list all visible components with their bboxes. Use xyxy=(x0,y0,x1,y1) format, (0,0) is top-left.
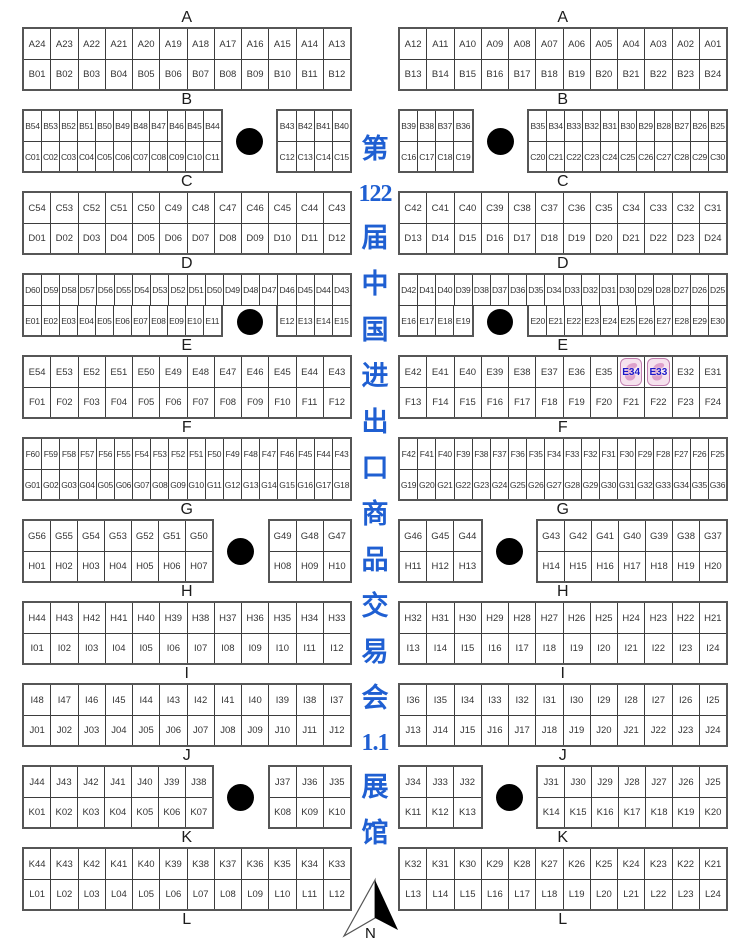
booth-cell[interactable]: G11 xyxy=(205,469,223,499)
booth-cell[interactable]: C25 xyxy=(618,141,636,171)
booth-cell[interactable]: B25 xyxy=(708,111,726,141)
booth-cell[interactable]: D34 xyxy=(544,275,562,305)
booth-cell[interactable]: F05 xyxy=(132,387,159,417)
booth-cell[interactable]: C32 xyxy=(672,193,699,223)
booth-cell[interactable]: G52 xyxy=(131,521,158,551)
booth-cell[interactable]: K41 xyxy=(105,849,132,879)
booth-cell[interactable]: L19 xyxy=(563,879,590,909)
booth-cell[interactable]: I48 xyxy=(24,685,50,715)
booth-cell[interactable]: I18 xyxy=(535,633,562,663)
booth-cell[interactable]: A13 xyxy=(323,29,350,59)
booth-cell[interactable]: C03 xyxy=(59,141,77,171)
booth-cell[interactable]: D05 xyxy=(132,223,159,253)
booth-cell[interactable]: H32 xyxy=(400,603,426,633)
booth-cell[interactable]: B12 xyxy=(323,59,350,89)
booth-cell[interactable]: F58 xyxy=(59,439,77,469)
booth-cell[interactable]: E37 xyxy=(535,357,562,387)
booth-cell[interactable]: I19 xyxy=(563,633,590,663)
booth-cell[interactable]: H12 xyxy=(426,551,453,581)
booth-cell[interactable]: D12 xyxy=(323,223,350,253)
booth-cell[interactable]: H33 xyxy=(323,603,350,633)
booth-cell[interactable]: G21 xyxy=(435,469,453,499)
booth-cell[interactable]: D55 xyxy=(114,275,132,305)
booth-cell[interactable]: D56 xyxy=(96,275,114,305)
booth-cell[interactable]: L21 xyxy=(617,879,644,909)
booth-cell[interactable]: F47 xyxy=(259,439,277,469)
booth-cell[interactable]: E28 xyxy=(672,306,690,335)
booth-cell[interactable]: I30 xyxy=(563,685,590,715)
booth-cell[interactable]: D25 xyxy=(708,275,726,305)
booth-cell[interactable]: B08 xyxy=(214,59,241,89)
booth-cell[interactable]: G51 xyxy=(158,521,185,551)
booth-cell[interactable]: H39 xyxy=(159,603,186,633)
booth-cell[interactable]: G01 xyxy=(24,469,41,499)
booth-cell[interactable]: D10 xyxy=(268,223,295,253)
booth-cell[interactable]: G39 xyxy=(645,521,672,551)
booth-cell[interactable]: C06 xyxy=(113,141,131,171)
booth-cell[interactable]: I27 xyxy=(644,685,671,715)
booth-cell[interactable]: F32 xyxy=(581,439,599,469)
booth-cell[interactable]: I46 xyxy=(78,685,105,715)
booth-cell[interactable]: B17 xyxy=(508,59,535,89)
booth-cell[interactable]: J04 xyxy=(105,715,132,745)
booth-cell[interactable]: C37 xyxy=(535,193,562,223)
booth-cell[interactable]: F03 xyxy=(78,387,105,417)
booth-cell[interactable]: D47 xyxy=(259,275,277,305)
booth-cell[interactable]: I45 xyxy=(105,685,132,715)
booth-cell[interactable]: F59 xyxy=(41,439,59,469)
booth-cell[interactable]: D57 xyxy=(78,275,96,305)
booth-cell[interactable]: J23 xyxy=(672,715,699,745)
booth-cell[interactable]: I15 xyxy=(454,633,481,663)
booth-cell[interactable]: C04 xyxy=(77,141,95,171)
booth-cell[interactable]: D13 xyxy=(400,223,426,253)
booth-cell[interactable]: D09 xyxy=(241,223,268,253)
booth-cell[interactable]: H44 xyxy=(24,603,50,633)
booth-cell[interactable]: A01 xyxy=(699,29,726,59)
booth-cell[interactable]: F39 xyxy=(454,439,472,469)
booth-cell[interactable]: H06 xyxy=(158,551,185,581)
booth-cell[interactable]: C23 xyxy=(582,141,600,171)
booth-cell[interactable]: E45 xyxy=(268,357,295,387)
booth-cell[interactable]: G07 xyxy=(132,469,150,499)
booth-cell[interactable]: J28 xyxy=(618,767,645,797)
booth-cell[interactable]: J19 xyxy=(563,715,590,745)
booth-cell[interactable]: C50 xyxy=(132,193,159,223)
booth-cell[interactable]: A04 xyxy=(617,29,644,59)
booth-cell[interactable]: H31 xyxy=(426,603,453,633)
booth-cell[interactable]: L03 xyxy=(78,879,105,909)
booth-cell[interactable]: L14 xyxy=(426,879,453,909)
booth-cell[interactable]: D38 xyxy=(472,275,490,305)
booth-cell[interactable]: J20 xyxy=(590,715,617,745)
booth-cell[interactable]: D22 xyxy=(644,223,671,253)
booth-cell[interactable]: K12 xyxy=(426,797,453,827)
booth-cell[interactable]: B13 xyxy=(400,59,426,89)
booth-cell[interactable]: G04 xyxy=(78,469,96,499)
booth-cell[interactable]: J33 xyxy=(426,767,453,797)
booth-cell[interactable]: G49 xyxy=(270,521,296,551)
booth-cell[interactable]: F27 xyxy=(672,439,690,469)
booth-cell[interactable]: D04 xyxy=(105,223,132,253)
booth-cell[interactable]: G13 xyxy=(241,469,259,499)
booth-cell[interactable]: G50 xyxy=(185,521,212,551)
booth-cell[interactable]: C05 xyxy=(95,141,113,171)
booth-cell[interactable]: B50 xyxy=(95,111,113,141)
booth-cell[interactable]: H28 xyxy=(508,603,535,633)
booth-cell[interactable]: G18 xyxy=(332,469,350,499)
booth-cell[interactable]: L10 xyxy=(268,879,295,909)
booth-cell[interactable]: A16 xyxy=(241,29,268,59)
booth-cell[interactable]: F18 xyxy=(535,387,562,417)
booth-cell[interactable]: C39 xyxy=(481,193,508,223)
booth-cell[interactable]: B15 xyxy=(454,59,481,89)
booth-cell[interactable]: I09 xyxy=(241,633,268,663)
booth-cell[interactable]: D51 xyxy=(187,275,205,305)
booth-cell[interactable]: J11 xyxy=(296,715,323,745)
booth-cell[interactable]: J21 xyxy=(617,715,644,745)
booth-cell[interactable]: G47 xyxy=(323,521,350,551)
booth-cell[interactable]: G05 xyxy=(96,469,114,499)
booth-cell[interactable]: C33 xyxy=(644,193,671,223)
booth-cell[interactable]: L18 xyxy=(535,879,562,909)
booth-cell[interactable]: K19 xyxy=(672,797,699,827)
booth-cell[interactable]: H25 xyxy=(590,603,617,633)
booth-cell[interactable]: D50 xyxy=(205,275,223,305)
booth-cell[interactable]: C29 xyxy=(690,141,708,171)
booth-cell[interactable]: I06 xyxy=(159,633,186,663)
booth-cell[interactable]: F22 xyxy=(644,387,671,417)
booth-cell[interactable]: I11 xyxy=(296,633,323,663)
booth-cell[interactable]: D30 xyxy=(617,275,635,305)
booth-cell[interactable]: C12 xyxy=(278,141,295,171)
booth-cell[interactable]: H21 xyxy=(699,603,726,633)
booth-cell[interactable]: H43 xyxy=(50,603,77,633)
booth-cell[interactable]: E48 xyxy=(187,357,214,387)
booth-cell[interactable]: F50 xyxy=(205,439,223,469)
booth-cell[interactable]: F14 xyxy=(426,387,453,417)
booth-cell[interactable]: K24 xyxy=(617,849,644,879)
booth-cell[interactable]: C19 xyxy=(453,141,471,171)
booth-cell[interactable]: J37 xyxy=(270,767,296,797)
booth-cell[interactable]: B02 xyxy=(50,59,77,89)
booth-cell[interactable]: J01 xyxy=(24,715,50,745)
booth-cell[interactable]: E12 xyxy=(278,306,295,335)
booth-cell[interactable]: F55 xyxy=(114,439,132,469)
booth-cell[interactable]: K26 xyxy=(563,849,590,879)
booth-cell[interactable]: E34 xyxy=(617,357,644,387)
booth-cell[interactable]: G23 xyxy=(472,469,490,499)
booth-cell[interactable]: C30 xyxy=(708,141,726,171)
booth-cell[interactable]: G28 xyxy=(563,469,581,499)
booth-cell[interactable]: F49 xyxy=(223,439,241,469)
booth-cell[interactable]: B33 xyxy=(564,111,582,141)
booth-cell[interactable]: D03 xyxy=(78,223,105,253)
booth-cell[interactable]: I25 xyxy=(699,685,726,715)
booth-cell[interactable]: E26 xyxy=(636,306,654,335)
booth-cell[interactable]: B31 xyxy=(600,111,618,141)
booth-cell[interactable]: K13 xyxy=(453,797,480,827)
booth-cell[interactable]: D45 xyxy=(296,275,314,305)
booth-cell[interactable]: K17 xyxy=(618,797,645,827)
booth-cell[interactable]: D43 xyxy=(332,275,350,305)
booth-cell[interactable]: H23 xyxy=(644,603,671,633)
booth-cell[interactable]: H42 xyxy=(78,603,105,633)
booth-cell[interactable]: D21 xyxy=(617,223,644,253)
booth-cell[interactable]: A10 xyxy=(454,29,481,59)
booth-cell[interactable]: B09 xyxy=(241,59,268,89)
booth-cell[interactable]: E49 xyxy=(159,357,186,387)
booth-cell[interactable]: L07 xyxy=(187,879,214,909)
booth-cell[interactable]: F40 xyxy=(435,439,453,469)
booth-cell[interactable]: D26 xyxy=(690,275,708,305)
booth-cell[interactable]: B07 xyxy=(187,59,214,89)
booth-cell[interactable]: D20 xyxy=(590,223,617,253)
booth-cell[interactable]: K14 xyxy=(538,797,564,827)
booth-cell[interactable]: H35 xyxy=(268,603,295,633)
booth-cell[interactable]: E30 xyxy=(708,306,726,335)
booth-cell[interactable]: H15 xyxy=(564,551,591,581)
booth-cell[interactable]: C48 xyxy=(187,193,214,223)
booth-cell[interactable]: B30 xyxy=(618,111,636,141)
booth-cell[interactable]: K42 xyxy=(78,849,105,879)
booth-cell[interactable]: I02 xyxy=(50,633,77,663)
booth-cell[interactable]: H40 xyxy=(132,603,159,633)
booth-cell[interactable]: C35 xyxy=(590,193,617,223)
booth-cell[interactable]: E51 xyxy=(105,357,132,387)
booth-cell[interactable]: J32 xyxy=(453,767,480,797)
booth-cell[interactable]: C41 xyxy=(426,193,453,223)
booth-cell[interactable]: E44 xyxy=(296,357,323,387)
booth-cell[interactable]: J18 xyxy=(535,715,562,745)
booth-cell[interactable]: F37 xyxy=(490,439,508,469)
booth-cell[interactable]: I42 xyxy=(187,685,214,715)
booth-cell[interactable]: I14 xyxy=(426,633,453,663)
booth-cell[interactable]: A17 xyxy=(214,29,241,59)
booth-cell[interactable]: H14 xyxy=(538,551,564,581)
booth-cell[interactable]: I33 xyxy=(481,685,508,715)
booth-cell[interactable]: F34 xyxy=(544,439,562,469)
booth-cell[interactable]: K29 xyxy=(481,849,508,879)
booth-cell[interactable]: L04 xyxy=(105,879,132,909)
booth-cell[interactable]: B11 xyxy=(296,59,323,89)
booth-cell[interactable]: E18 xyxy=(435,306,453,335)
booth-cell[interactable]: G45 xyxy=(426,521,453,551)
booth-cell[interactable]: J35 xyxy=(323,767,350,797)
booth-cell[interactable]: C16 xyxy=(400,141,417,171)
booth-cell[interactable]: C09 xyxy=(167,141,185,171)
booth-cell[interactable]: J12 xyxy=(323,715,350,745)
booth-cell[interactable]: I29 xyxy=(590,685,617,715)
booth-cell[interactable]: F10 xyxy=(268,387,295,417)
booth-cell[interactable]: K03 xyxy=(77,797,104,827)
booth-cell[interactable]: K09 xyxy=(296,797,323,827)
booth-cell[interactable]: J08 xyxy=(214,715,241,745)
booth-cell[interactable]: C02 xyxy=(41,141,59,171)
booth-cell[interactable]: B18 xyxy=(535,59,562,89)
booth-cell[interactable]: K11 xyxy=(400,797,426,827)
booth-cell[interactable]: I24 xyxy=(699,633,726,663)
booth-cell[interactable]: B01 xyxy=(24,59,50,89)
booth-cell[interactable]: K16 xyxy=(591,797,618,827)
booth-cell[interactable]: L11 xyxy=(296,879,323,909)
booth-cell[interactable]: B16 xyxy=(481,59,508,89)
booth-cell[interactable]: C34 xyxy=(617,193,644,223)
booth-cell[interactable]: C52 xyxy=(78,193,105,223)
booth-cell[interactable]: J26 xyxy=(672,767,699,797)
booth-cell[interactable]: H05 xyxy=(131,551,158,581)
booth-cell[interactable]: F25 xyxy=(708,439,726,469)
booth-cell[interactable]: J09 xyxy=(241,715,268,745)
booth-cell[interactable]: H04 xyxy=(104,551,131,581)
booth-cell[interactable]: E25 xyxy=(618,306,636,335)
booth-cell[interactable]: C24 xyxy=(600,141,618,171)
booth-cell[interactable]: G41 xyxy=(591,521,618,551)
booth-cell[interactable]: A19 xyxy=(159,29,186,59)
booth-cell[interactable]: C54 xyxy=(24,193,50,223)
booth-cell[interactable]: H26 xyxy=(563,603,590,633)
booth-cell[interactable]: B54 xyxy=(24,111,41,141)
booth-cell[interactable]: G31 xyxy=(617,469,635,499)
booth-cell[interactable]: I07 xyxy=(187,633,214,663)
booth-cell[interactable]: B04 xyxy=(105,59,132,89)
booth-cell[interactable]: E31 xyxy=(699,357,726,387)
booth-cell[interactable]: F41 xyxy=(417,439,435,469)
booth-cell[interactable]: B36 xyxy=(453,111,471,141)
booth-cell[interactable]: L20 xyxy=(590,879,617,909)
booth-cell[interactable]: C15 xyxy=(332,141,350,171)
booth-cell[interactable]: D06 xyxy=(159,223,186,253)
booth-cell[interactable]: C11 xyxy=(203,141,221,171)
booth-cell[interactable]: J14 xyxy=(426,715,453,745)
booth-cell[interactable]: F46 xyxy=(277,439,295,469)
booth-cell[interactable]: G16 xyxy=(296,469,314,499)
booth-cell[interactable]: J30 xyxy=(564,767,591,797)
booth-cell[interactable]: F26 xyxy=(690,439,708,469)
booth-cell[interactable]: J22 xyxy=(644,715,671,745)
booth-cell[interactable]: E53 xyxy=(50,357,77,387)
booth-cell[interactable]: G27 xyxy=(544,469,562,499)
booth-cell[interactable]: D28 xyxy=(653,275,671,305)
booth-cell[interactable]: G19 xyxy=(400,469,417,499)
booth-cell[interactable]: E39 xyxy=(481,357,508,387)
booth-cell[interactable]: B41 xyxy=(314,111,332,141)
booth-cell[interactable]: G12 xyxy=(223,469,241,499)
booth-cell[interactable]: A08 xyxy=(508,29,535,59)
booth-cell[interactable]: K38 xyxy=(187,849,214,879)
booth-cell[interactable]: B03 xyxy=(78,59,105,89)
booth-cell[interactable]: C44 xyxy=(296,193,323,223)
booth-cell[interactable]: I05 xyxy=(132,633,159,663)
booth-cell[interactable]: A11 xyxy=(426,29,453,59)
booth-cell[interactable]: F15 xyxy=(454,387,481,417)
booth-cell[interactable]: D60 xyxy=(24,275,41,305)
booth-cell[interactable]: B29 xyxy=(636,111,654,141)
booth-cell[interactable]: F48 xyxy=(241,439,259,469)
booth-cell[interactable]: C27 xyxy=(654,141,672,171)
booth-cell[interactable]: B26 xyxy=(690,111,708,141)
booth-cell[interactable]: H18 xyxy=(645,551,672,581)
booth-cell[interactable]: K01 xyxy=(24,797,50,827)
booth-cell[interactable]: E43 xyxy=(323,357,350,387)
booth-cell[interactable]: D39 xyxy=(454,275,472,305)
booth-cell[interactable]: B48 xyxy=(131,111,149,141)
booth-cell[interactable]: E47 xyxy=(214,357,241,387)
booth-cell[interactable]: C07 xyxy=(131,141,149,171)
booth-cell[interactable]: I28 xyxy=(617,685,644,715)
booth-cell[interactable]: C26 xyxy=(636,141,654,171)
booth-cell[interactable]: G17 xyxy=(314,469,332,499)
booth-cell[interactable]: J24 xyxy=(699,715,726,745)
booth-cell[interactable]: H16 xyxy=(591,551,618,581)
booth-cell[interactable]: I23 xyxy=(672,633,699,663)
booth-cell[interactable]: K43 xyxy=(50,849,77,879)
booth-cell[interactable]: J38 xyxy=(185,767,212,797)
booth-cell[interactable]: D01 xyxy=(24,223,50,253)
booth-cell[interactable]: C28 xyxy=(672,141,690,171)
booth-cell[interactable]: J03 xyxy=(78,715,105,745)
booth-cell[interactable]: I34 xyxy=(454,685,481,715)
booth-cell[interactable]: G42 xyxy=(564,521,591,551)
booth-cell[interactable]: G30 xyxy=(599,469,617,499)
booth-cell[interactable]: K23 xyxy=(644,849,671,879)
booth-cell[interactable]: I03 xyxy=(78,633,105,663)
booth-cell[interactable]: I35 xyxy=(426,685,453,715)
booth-cell[interactable]: H11 xyxy=(400,551,426,581)
booth-cell[interactable]: A06 xyxy=(563,29,590,59)
booth-cell[interactable]: D40 xyxy=(435,275,453,305)
booth-cell[interactable]: I17 xyxy=(508,633,535,663)
booth-cell[interactable]: E32 xyxy=(672,357,699,387)
booth-cell[interactable]: B28 xyxy=(654,111,672,141)
booth-cell[interactable]: F33 xyxy=(563,439,581,469)
booth-cell[interactable]: J10 xyxy=(268,715,295,745)
booth-cell[interactable]: D48 xyxy=(241,275,259,305)
booth-cell[interactable]: C21 xyxy=(546,141,564,171)
booth-cell[interactable]: B22 xyxy=(644,59,671,89)
booth-cell[interactable]: E20 xyxy=(529,306,546,335)
booth-cell[interactable]: C51 xyxy=(105,193,132,223)
booth-cell[interactable]: A14 xyxy=(296,29,323,59)
booth-cell[interactable]: H22 xyxy=(672,603,699,633)
booth-cell[interactable]: H19 xyxy=(672,551,699,581)
booth-cell[interactable]: E08 xyxy=(149,306,167,335)
booth-cell[interactable]: H02 xyxy=(50,551,77,581)
booth-cell[interactable]: G22 xyxy=(454,469,472,499)
booth-cell[interactable]: G33 xyxy=(653,469,671,499)
booth-cell[interactable]: G48 xyxy=(296,521,323,551)
booth-cell[interactable]: H20 xyxy=(699,551,726,581)
booth-cell[interactable]: C14 xyxy=(314,141,332,171)
booth-cell[interactable]: D49 xyxy=(223,275,241,305)
booth-cell[interactable]: D19 xyxy=(563,223,590,253)
booth-cell[interactable]: E41 xyxy=(426,357,453,387)
booth-cell[interactable]: J44 xyxy=(24,767,50,797)
booth-cell[interactable]: B32 xyxy=(582,111,600,141)
booth-cell[interactable]: D36 xyxy=(508,275,526,305)
booth-cell[interactable]: C08 xyxy=(149,141,167,171)
booth-cell[interactable]: H29 xyxy=(481,603,508,633)
booth-cell[interactable]: G29 xyxy=(581,469,599,499)
booth-cell[interactable]: C43 xyxy=(323,193,350,223)
booth-cell[interactable]: J13 xyxy=(400,715,426,745)
booth-cell[interactable]: F56 xyxy=(96,439,114,469)
booth-cell[interactable]: E38 xyxy=(508,357,535,387)
booth-cell[interactable]: B46 xyxy=(167,111,185,141)
booth-cell[interactable]: B21 xyxy=(617,59,644,89)
booth-cell[interactable]: K40 xyxy=(132,849,159,879)
booth-cell[interactable]: F20 xyxy=(590,387,617,417)
